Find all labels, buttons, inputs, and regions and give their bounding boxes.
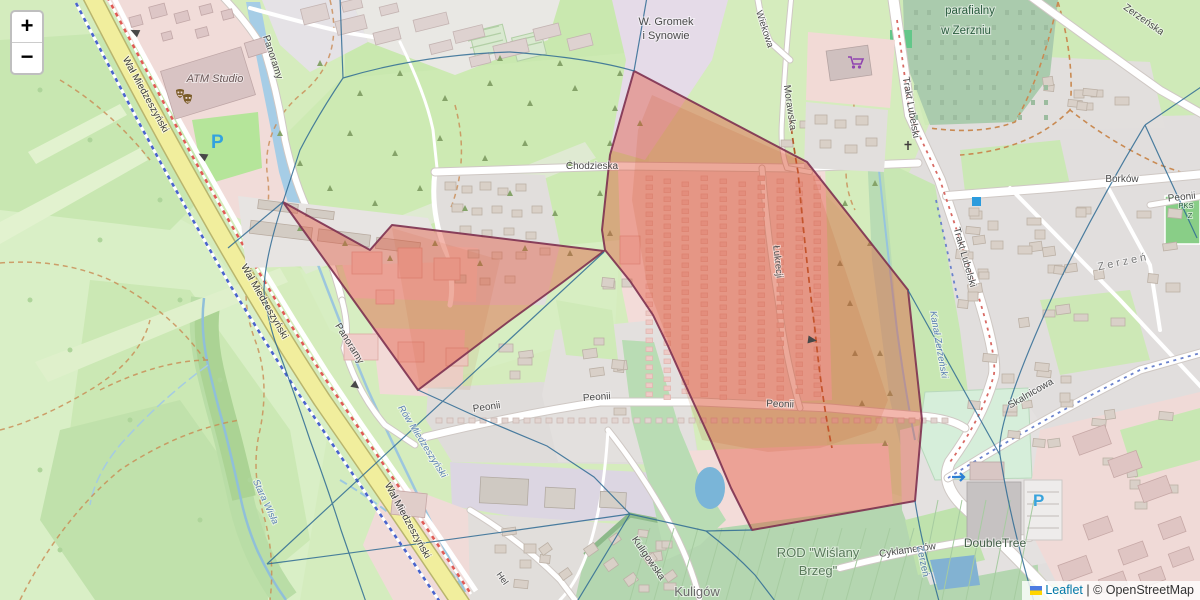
svg-text:PKS: PKS	[1178, 201, 1193, 210]
svg-text:P: P	[211, 132, 224, 153]
svg-text:DoubleTree: DoubleTree	[964, 536, 1027, 550]
svg-text:W. Gromek: W. Gromek	[638, 16, 694, 28]
svg-text:Peonii: Peonii	[766, 399, 794, 411]
svg-text:Z: Z	[1188, 211, 1193, 220]
svg-text:ROD "Wiślany: ROD "Wiślany	[777, 545, 860, 560]
svg-text:parafialny: parafialny	[945, 5, 995, 17]
svg-text:Kuligów: Kuligów	[674, 584, 720, 599]
svg-text:P: P	[1033, 491, 1044, 510]
svg-text:Chodzieska: Chodzieska	[566, 161, 619, 172]
svg-text:Borków: Borków	[1105, 174, 1139, 185]
svg-text:i Synowie: i Synowie	[642, 30, 689, 42]
svg-text:Brzeg": Brzeg"	[799, 563, 838, 578]
svg-text:w Zerzniu: w Zerzniu	[940, 25, 991, 37]
svg-text:Peonii: Peonii	[583, 391, 612, 404]
svg-text:ATM Studio: ATM Studio	[186, 73, 244, 85]
